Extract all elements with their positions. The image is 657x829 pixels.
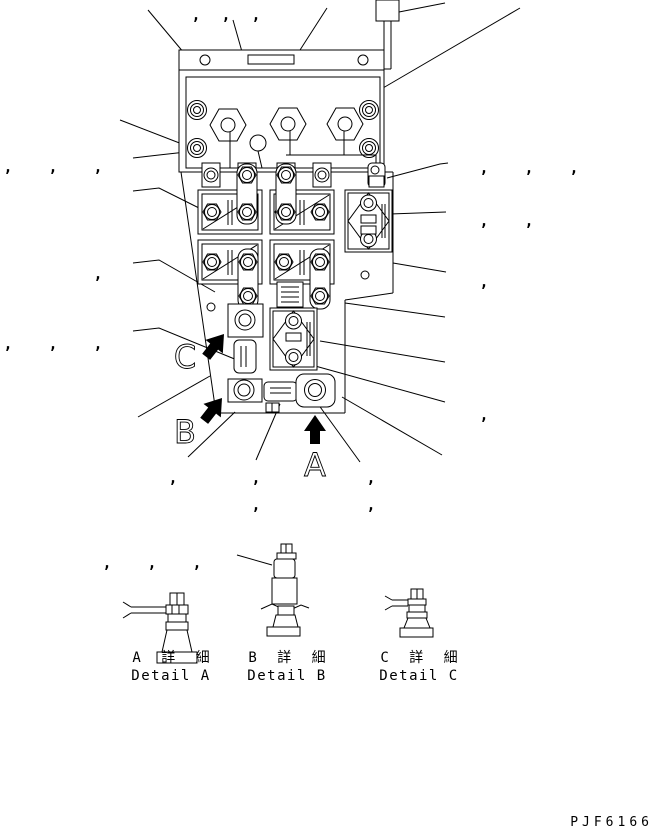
bolt-tab [202,163,220,187]
pointer-letter-a: A [304,446,326,484]
stud-hole [250,135,266,151]
leader-line [237,555,272,565]
leader-line [399,3,445,12]
relay-terminal [361,226,376,234]
callout-comma: , [251,469,260,487]
leader-line [390,212,446,214]
callout-comma: , [251,496,260,514]
callout-comma: , [3,158,12,176]
callout-comma: , [569,159,578,177]
detail-c-figure [385,589,433,637]
callout-comma: , [93,265,102,283]
bottom-fuse [264,382,297,412]
callout-comma: , [221,6,230,24]
parts-diagram: C B A A 詳 細 Detail A B 詳 細 Detai [0,0,657,829]
pointer-letter-b: B [174,413,196,451]
callout-comma: , [479,406,488,424]
leader-line [393,263,446,272]
fusible-link [368,163,385,187]
callout-comma: , [48,335,57,353]
callout-comma: , [102,554,111,572]
callout-comma: , [524,159,533,177]
ring-terminal [188,139,207,158]
detail-a-caption-en: Detail A [131,668,210,684]
callout-comma: , [3,335,12,353]
callout-comma: , [147,554,156,572]
callout-comma: , [48,158,57,176]
fuse [234,340,256,373]
casing-hole [207,303,215,311]
terminal-bolt-a [296,374,335,407]
callout-comma: , [168,469,177,487]
callout-comma: , [93,335,102,353]
callout-comma: , [192,554,201,572]
detail-b-caption-jp: B 詳 細 [248,650,331,666]
terminal-plate [277,282,303,307]
bolt-tab [313,163,331,187]
callout-comma: , [479,273,488,291]
detail-b-caption-en: Detail B [247,668,326,684]
casing-hole [361,271,369,279]
left-stack [228,304,263,402]
top-terminal-box [179,50,384,172]
battery-relay [270,308,317,370]
pointer-letter-c: C [174,338,196,376]
arrow-a-icon [304,415,326,444]
mount-hole [358,55,368,65]
callout-comma: , [93,158,102,176]
detail-a-caption-jp: A 詳 細 [132,650,215,666]
leader-line [133,188,207,212]
arrow-b-icon [195,391,230,427]
ring-terminal [188,101,207,120]
callout-comma: , [191,6,200,24]
leader-line [138,376,210,417]
battery-relay [345,190,392,252]
leader-line [345,303,445,317]
callout-comma: , [479,212,488,230]
callout-comma: , [251,6,260,24]
detail-b-figure [261,544,309,636]
drawing-page: C B A A 詳 細 Detail A B 詳 細 Detai [0,0,657,829]
detail-c-caption-jp: C 詳 細 [380,650,463,666]
callout-comma: , [366,469,375,487]
callout-comma: , [366,496,375,514]
leader-line [387,163,448,178]
leader-line [383,8,520,88]
leader-line [320,341,445,362]
callout-comma: , [524,212,533,230]
detail-c-caption-en: Detail C [379,668,458,684]
ring-terminal [360,101,379,120]
drawing-code: PJF6166 [570,815,653,829]
mount-hole [200,55,210,65]
leader-line [342,397,442,455]
callout-comma: , [479,159,488,177]
label-slot [248,55,294,64]
